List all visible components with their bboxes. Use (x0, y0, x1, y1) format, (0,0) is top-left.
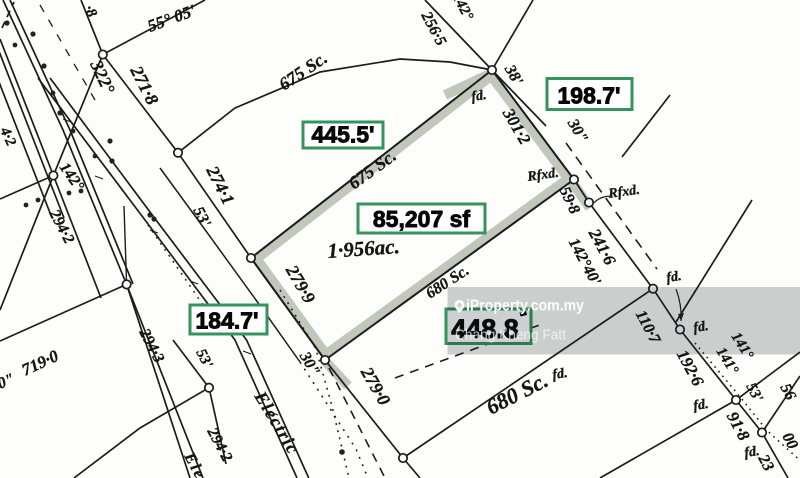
svg-text:Chang Kheng Fatt: Chang Kheng Fatt (455, 328, 566, 344)
svg-text:1·956ac.: 1·956ac. (327, 234, 401, 263)
svg-text:iProperty.com.my: iProperty.com.my (466, 298, 584, 315)
svg-text:fd.: fd. (743, 444, 760, 461)
svg-text:445.5': 445.5' (311, 122, 374, 148)
svg-text:fd.: fd. (551, 366, 568, 383)
svg-text:198.7': 198.7' (557, 83, 620, 109)
svg-text:85,207 sf: 85,207 sf (373, 206, 471, 232)
svg-text:fd.: fd. (665, 269, 682, 286)
svg-text:fd.: fd. (470, 88, 487, 105)
svg-text:fd.: fd. (692, 397, 709, 414)
svg-text:184.7': 184.7' (195, 308, 258, 334)
